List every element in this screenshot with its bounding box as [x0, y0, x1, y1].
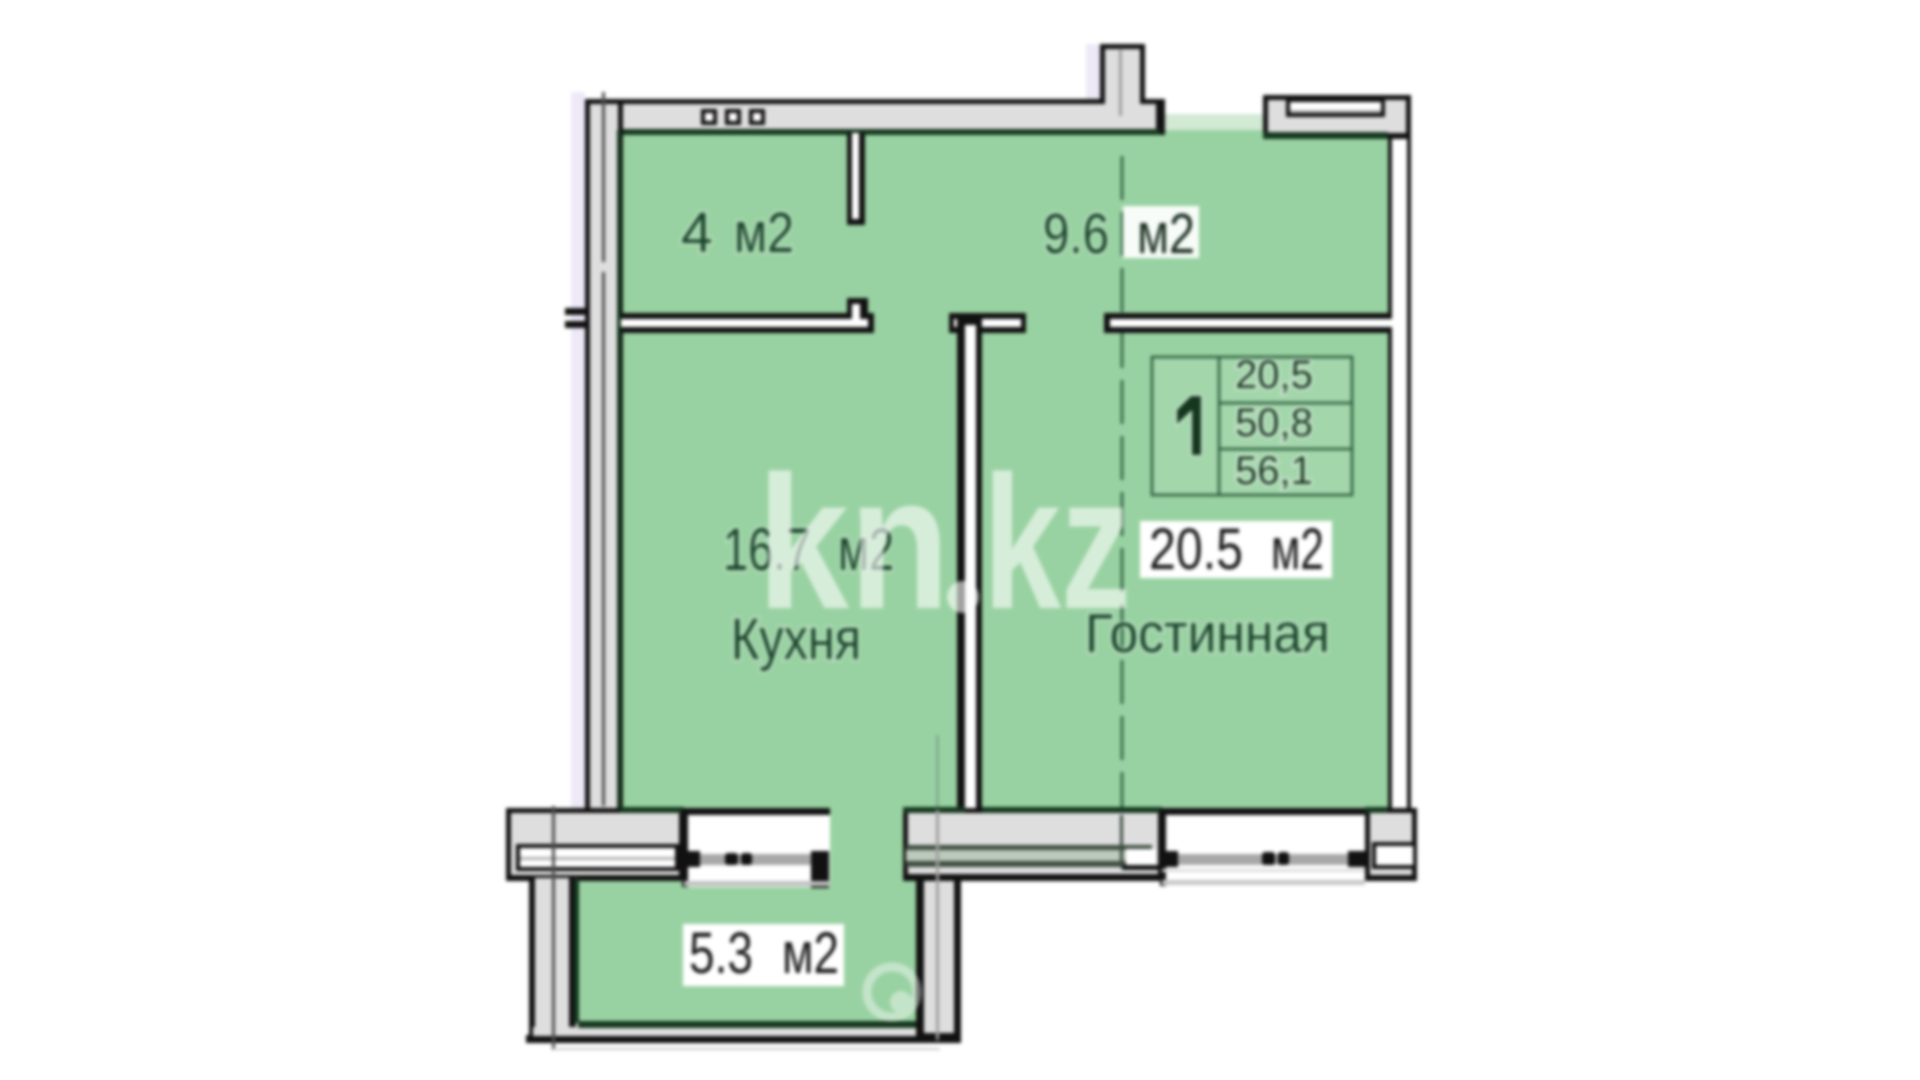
svg-text:20.5: 20.5 — [1149, 517, 1243, 582]
svg-text:м2: м2 — [734, 201, 794, 265]
svg-text:56,1: 56,1 — [1235, 449, 1313, 493]
svg-text:5.3: 5.3 — [689, 921, 753, 986]
svg-text:м2: м2 — [782, 921, 839, 986]
svg-text:20,5: 20,5 — [1235, 353, 1313, 397]
svg-text:kn: kn — [757, 437, 950, 649]
svg-text:м2: м2 — [1271, 517, 1324, 582]
svg-text:м2: м2 — [1137, 202, 1195, 266]
svg-text:4: 4 — [681, 201, 713, 265]
svg-text:9.6: 9.6 — [1043, 202, 1109, 266]
svg-text:50,8: 50,8 — [1235, 401, 1313, 445]
svg-text:kz: kz — [983, 437, 1131, 649]
